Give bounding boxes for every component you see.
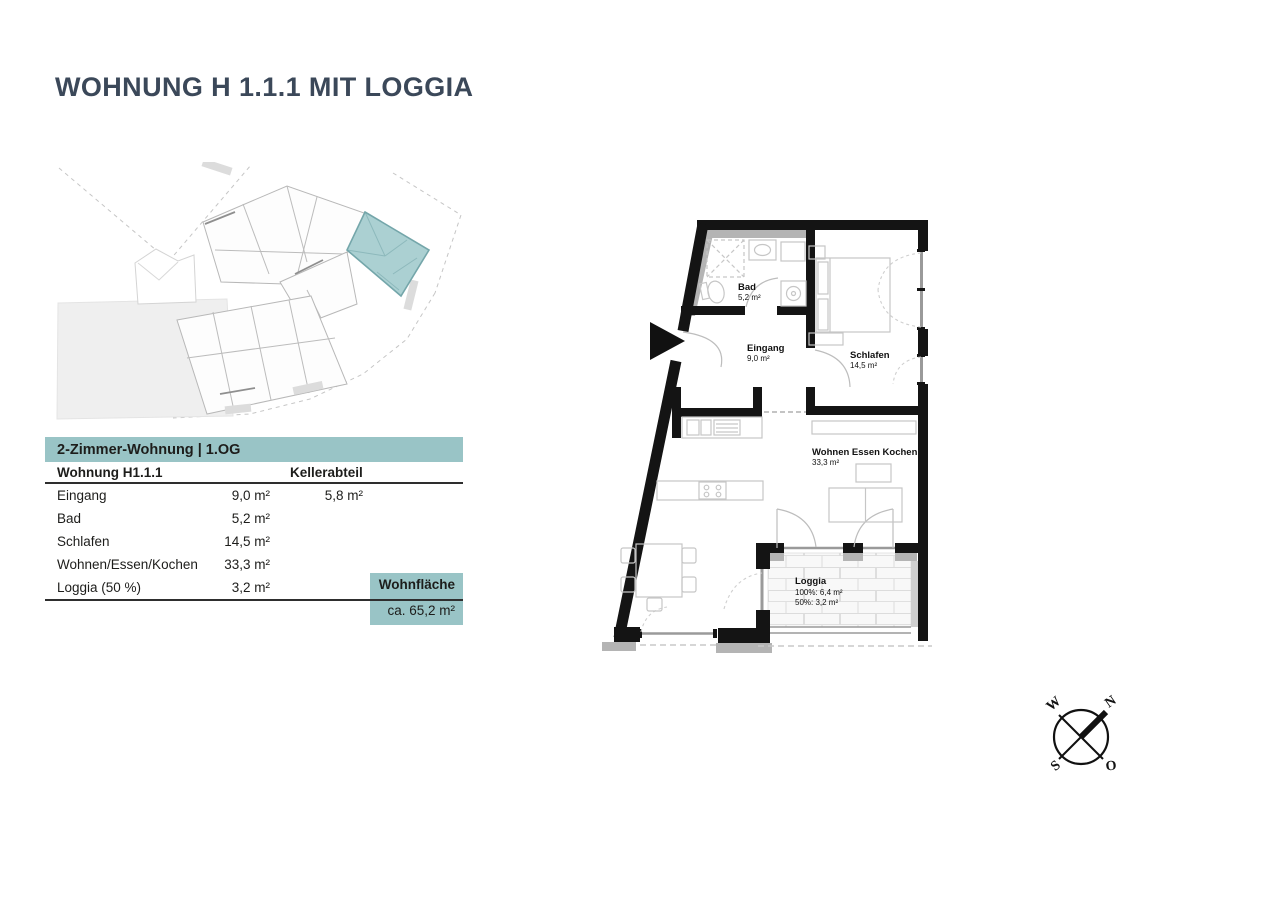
room-label-bad: Bad [738, 282, 756, 293]
table-title-band: 2-Zimmer-Wohnung | 1.OG [45, 437, 463, 462]
table-row: Bad 5,2 m² [45, 507, 463, 530]
room-label-wohnen: Wohnen Essen Kochen [812, 447, 918, 458]
table-column-headers: Wohnung H1.1.1 Kellerabteil [45, 462, 463, 484]
table-row: Loggia (50 %) 3,2 m² [45, 576, 463, 599]
room-area-loggia-100: 100%: 6,4 m² [795, 588, 843, 597]
area-table: 2-Zimmer-Wohnung | 1.OG Wohnung H1.1.1 K… [45, 437, 463, 601]
compass-rose-icon: N W S O [1035, 685, 1130, 785]
row-keller-area: 5,8 m² [285, 488, 363, 503]
row-area: 9,0 m² [45, 488, 270, 503]
room-area-eingang: 9,0 m² [747, 354, 770, 363]
page-title: WOHNUNG H 1.1.1 MIT LOGGIA [55, 72, 473, 103]
site-plan-overview [55, 162, 470, 424]
site-neighbor-house [135, 249, 196, 304]
room-label-schlafen: Schlafen [850, 350, 890, 361]
room-label-loggia: Loggia [795, 576, 827, 587]
site-building-footprint [177, 162, 419, 414]
room-area-loggia-50: 50%: 3,2 m² [795, 598, 838, 607]
row-area: 14,5 m² [45, 534, 270, 549]
table-rows: Eingang 9,0 m² 5,8 m² Bad 5,2 m² Schlafe… [45, 484, 463, 601]
column-header-apartment: Wohnung H1.1.1 [45, 465, 163, 480]
column-header-keller: Kellerabteil [290, 465, 363, 480]
compass-east-label: O [1105, 759, 1117, 775]
row-area: 3,2 m² [45, 580, 270, 595]
room-area-bad: 5,2 m² [738, 293, 761, 302]
table-row: Schlafen 14,5 m² [45, 530, 463, 553]
floor-plan: Bad 5,2 m² Eingang 9,0 m² Schlafen 14,5 … [590, 193, 942, 663]
table-row: Wohnen/Essen/Kochen 33,3 m² [45, 553, 463, 576]
compass-west-label: W [1044, 694, 1064, 714]
room-label-eingang: Eingang [747, 343, 785, 354]
living-area-total-value: ca. 65,2 m² [387, 603, 455, 618]
row-area: 33,3 m² [45, 557, 270, 572]
row-area: 5,2 m² [45, 511, 270, 526]
room-area-wohnen: 33,3 m² [812, 458, 839, 467]
table-row: Eingang 9,0 m² 5,8 m² [45, 484, 463, 507]
brochure-page: WOHNUNG H 1.1.1 MIT LOGGIA [0, 0, 1272, 900]
room-area-schlafen: 14,5 m² [850, 361, 877, 370]
compass-south-label: S [1048, 758, 1064, 775]
compass-north-label: N [1102, 693, 1119, 711]
